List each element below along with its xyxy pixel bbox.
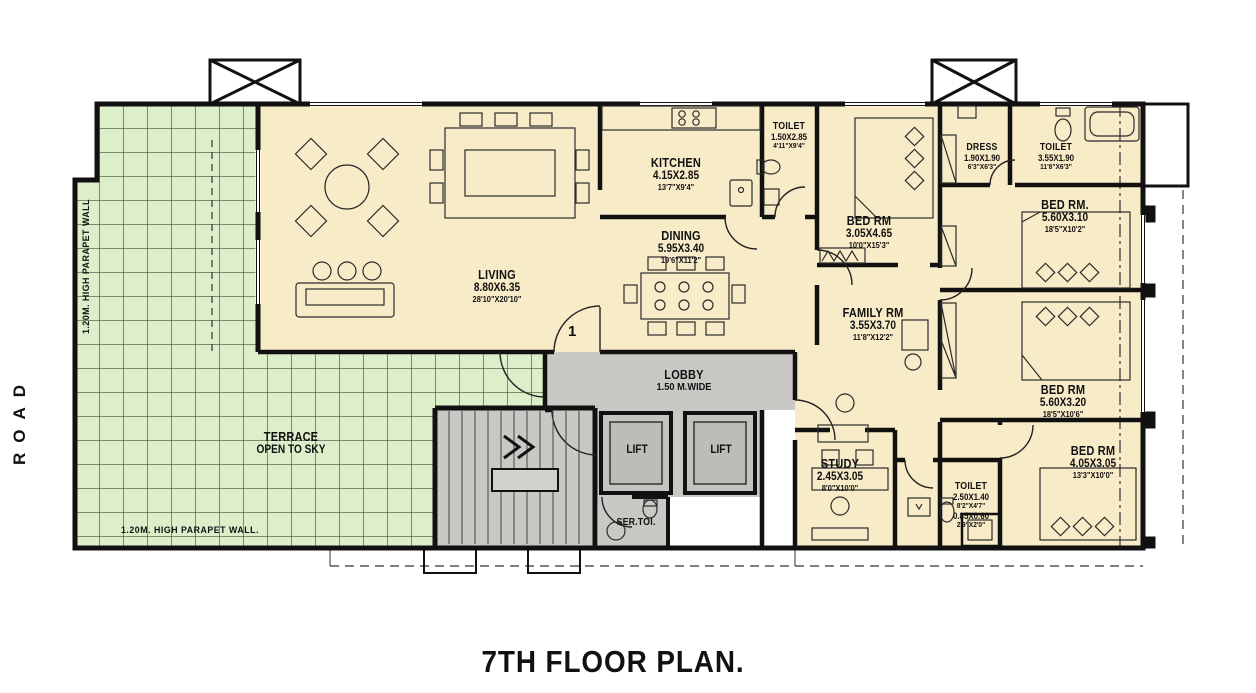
room-dim-m: 5.60X3.20 <box>1040 397 1086 410</box>
room-dim2-ft: 2'9"X2'0" <box>953 521 989 529</box>
floor-plan: KITCHEN 4.15X2.85 13'7"X9'4" TOILET 1.50… <box>0 0 1256 693</box>
room-dim-ft: 10'0"X15'3" <box>846 241 892 251</box>
room-label-toilet-bottom: TOILET 2.50X1.40 8'2"X4'7" 0.85X0.60 2'9… <box>953 481 989 529</box>
stairs <box>449 411 579 544</box>
room-label-family: FAMILY RM 3.55X3.70 11'8"X12'2" <box>843 306 904 342</box>
room-name: BED RM. <box>1041 198 1089 212</box>
room-dim-ft: 8'0"X10'0" <box>817 484 863 494</box>
room-name: DRESS <box>964 142 1000 153</box>
room-label-kitchen: KITCHEN 4.15X2.85 13'7"X9'4" <box>651 156 701 192</box>
floor-plan-drawing <box>0 0 1256 693</box>
lobby-width: 1.50 M.WIDE <box>657 382 712 394</box>
room-name: KITCHEN <box>651 156 701 170</box>
lobby-name: LOBBY <box>657 368 712 382</box>
service-toilet-text: SER.TOI. <box>617 517 656 528</box>
road-label: ROAD <box>10 375 30 465</box>
room-label-dress: DRESS 1.90X1.90 6'3"X6'3" <box>964 142 1000 172</box>
walls-layer <box>75 104 1188 573</box>
room-dim-ft: 8'2"X4'7" <box>953 502 989 510</box>
room-dim-m: 2.45X3.05 <box>817 471 863 484</box>
room-dim-m: 3.55X3.70 <box>843 320 904 333</box>
room-label-bed-bottom-right: BED RM 4.05X3.05 13'3"X10'0" <box>1070 444 1116 480</box>
room-dim-ft: 13'7"X9'4" <box>651 183 701 193</box>
room-name: TOILET <box>953 481 989 492</box>
room-name: TOILET <box>1038 142 1074 153</box>
room-label-toilet-kitchen: TOILET 1.50X2.85 4'11"X9'4" <box>771 121 807 151</box>
room-name: DINING <box>658 229 704 243</box>
room-dim-m: 3.05X4.65 <box>846 228 892 241</box>
room-label-dining: DINING 5.95X3.40 19'6"X11'2" <box>658 229 704 265</box>
room-label-bed-center: BED RM 3.05X4.65 10'0"X15'3" <box>846 214 892 250</box>
room-dim-m: 4.15X2.85 <box>651 170 701 183</box>
room-label-study: STUDY 2.45X3.05 8'0"X10'0" <box>817 457 863 493</box>
room-dim-ft: 28'10"X20'10" <box>473 295 522 305</box>
room-label-bed-mid-right: BED RM 5.60X3.20 18'5"X10'6" <box>1040 383 1086 419</box>
plan-title: 7TH FLOOR PLAN. <box>481 644 744 680</box>
room-name: BED RM <box>1040 383 1086 397</box>
room-dim-ft: 4'11"X9'4" <box>771 142 807 150</box>
room-dim-ft: 11'8"X12'2" <box>843 333 904 343</box>
room-name: STUDY <box>817 457 863 471</box>
parapet-wall-label-bottom: 1.20M. HIGH PARAPET WALL. <box>121 525 259 536</box>
duct-top-left <box>210 60 300 104</box>
room-dim-ft: 19'6"X11'2" <box>658 256 704 266</box>
room-name: FAMILY RM <box>843 306 904 320</box>
room-dim-m: 5.95X3.40 <box>658 243 704 256</box>
room-dim-m: 4.05X3.05 <box>1070 458 1116 471</box>
lift-left-label: LIFT <box>626 444 647 457</box>
room-label-bed-top-right: BED RM. 5.60X3.10 18'5"X10'2" <box>1041 198 1089 234</box>
stairs-direction-arrow <box>504 436 533 458</box>
service-toilet-label: SER.TOI. <box>617 517 656 528</box>
room-dim-m: 5.60X3.10 <box>1041 212 1089 225</box>
lift-right-label: LIFT <box>710 444 731 457</box>
room-label-toilet-top: TOILET 3.55X1.90 11'8"X6'3" <box>1038 142 1074 172</box>
lift-left-text: LIFT <box>626 444 647 457</box>
room-dim-ft: 11'8"X6'3" <box>1038 163 1074 171</box>
room-dim-m: 8.80X6.35 <box>473 282 522 295</box>
room-label-living: LIVING 8.80X6.35 28'10"X20'10" <box>473 268 522 304</box>
terrace-name: TERRACE <box>257 430 326 444</box>
room-name: LIVING <box>473 268 522 282</box>
duct-top-right <box>932 60 1016 104</box>
room-dim-ft: 13'3"X10'0" <box>1070 471 1116 481</box>
lobby-label: LOBBY 1.50 M.WIDE <box>657 368 712 394</box>
room-name: TOILET <box>771 121 807 132</box>
room-dim-ft: 6'3"X6'3" <box>964 163 1000 171</box>
room-dim-ft: 18'5"X10'2" <box>1041 225 1089 235</box>
room-name: BED RM <box>1070 444 1116 458</box>
terrace-note: OPEN TO SKY <box>257 444 326 457</box>
parapet-wall-label-left: 1.20M. HIGH PARAPET WALL <box>81 199 91 334</box>
lift-right-text: LIFT <box>710 444 731 457</box>
room-dim-ft: 18'5"X10'6" <box>1040 410 1086 420</box>
room-name: BED RM <box>846 214 892 228</box>
terrace-label: TERRACE OPEN TO SKY <box>257 430 326 457</box>
entrance-marker: 1 <box>568 323 576 340</box>
